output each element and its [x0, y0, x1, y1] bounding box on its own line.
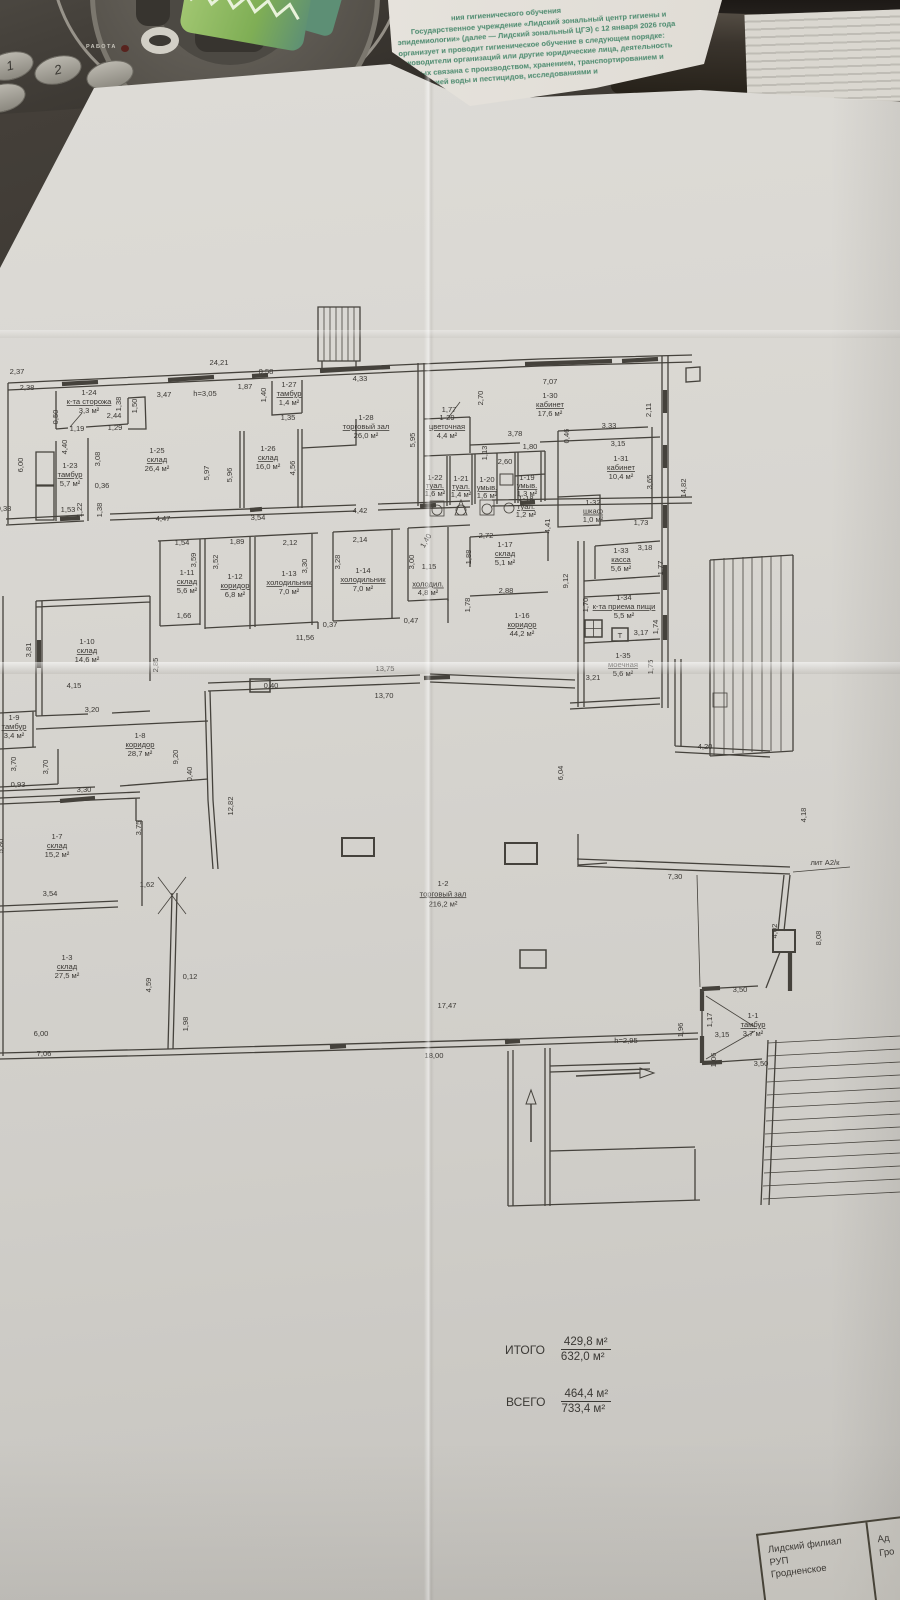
- dim-label: Т: [618, 631, 623, 640]
- dim-label: 1,73: [634, 518, 649, 527]
- dim-label: 1,88: [464, 550, 473, 565]
- room-label-1-11: 1-11склад5,6 м²: [177, 568, 198, 595]
- room-label-1-34: 1-34к-та приема пищи5,5 м²: [593, 593, 656, 620]
- dim-label: 2,11: [644, 403, 653, 417]
- dim-label: 3,00: [407, 555, 416, 570]
- dim-label: 5,80: [0, 839, 5, 854]
- floor-plan-drawing: 1-1тамбур3,7 м²1-2торговый зал216,2 м²1-…: [0, 0, 900, 1600]
- dim-label: 2,70: [476, 391, 485, 406]
- dim-label: 1,19: [70, 424, 85, 433]
- dim-label: 1,74: [651, 620, 660, 635]
- dim-label: 13,70: [374, 691, 393, 700]
- room-label-1-1: 1-1тамбур3,7 м²: [741, 1011, 766, 1038]
- dim-label: 2,38: [20, 383, 35, 392]
- dim-label: 1,54: [175, 538, 190, 547]
- dim-label: 3,70: [41, 760, 50, 775]
- dim-label: 3,28: [333, 555, 342, 570]
- dim-label: 1,38: [114, 397, 123, 412]
- dim-label: 3,50: [754, 1059, 769, 1068]
- dim-label: 1,80: [523, 442, 538, 451]
- dim-label: 14,82: [679, 478, 688, 497]
- dim-label: 4,40: [60, 440, 69, 455]
- dim-label: 3,54: [43, 889, 58, 898]
- dim-label: 3,30: [300, 559, 309, 574]
- dim-label: 4,15: [67, 681, 82, 690]
- dim-label: 3,30: [77, 785, 92, 794]
- dim-label: 7,07: [543, 377, 558, 386]
- dim-label: 3,08: [93, 452, 102, 467]
- dim-label: 0,47: [404, 616, 419, 625]
- dim-label: 3,18: [638, 543, 653, 552]
- dim-label: 1,66: [177, 611, 192, 620]
- dim-label: 4,42: [353, 506, 368, 515]
- dim-label: 2,60: [498, 457, 513, 466]
- room-label-1-31: 1-31кабинет10,4 м²: [607, 454, 635, 481]
- dim-label: 0,40: [185, 767, 194, 782]
- dim-label: 1,53: [61, 505, 76, 514]
- dim-label: 2,44: [107, 411, 122, 420]
- dim-label: 1,29: [108, 423, 123, 432]
- dim-label: 1,96: [676, 1023, 685, 1038]
- walls-entrance: [508, 951, 790, 1206]
- room-label-1-23: 1-23тамбур5,7 м²: [58, 461, 83, 488]
- room-label-1-21: 1-21туал.1,4 м²: [451, 474, 472, 499]
- dim-label: 9,20: [171, 750, 180, 765]
- dim-label: 3,52: [211, 555, 220, 570]
- dim-label: 4,56: [288, 461, 297, 476]
- room-label-1-16: 1-16коридор44,2 м²: [508, 611, 537, 638]
- dim-label: 1,22: [75, 503, 84, 518]
- dim-label: 3,50: [733, 985, 748, 994]
- dim-label: 4,33: [353, 374, 368, 383]
- itogo-area-main: 429,8 м²: [561, 1336, 611, 1350]
- dim-label: 1,77: [442, 405, 457, 414]
- dim-label: 0,12: [183, 972, 198, 981]
- room-label-1-33: 1-33касса5,6 м²: [611, 546, 632, 573]
- paper-fold-horizontal: [0, 662, 900, 674]
- dim-label: 4,41: [543, 519, 552, 534]
- dim-label: h=3,05: [193, 389, 216, 398]
- room-label-1-10: 1-10склад14,6 м²: [75, 637, 100, 664]
- dim-label: 1,77: [656, 561, 665, 576]
- dim-label: 1,50: [130, 399, 139, 414]
- room-label-1-3: 1-3склад27,5 м²: [55, 953, 80, 980]
- dim-label: 3,54: [251, 513, 266, 522]
- itogo-area-total: 632,0 м²: [561, 1350, 611, 1363]
- dim-label: 4,59: [144, 978, 153, 993]
- fixtures: [250, 474, 795, 968]
- dim-label: 1,89: [230, 537, 245, 546]
- dim-label: 17,47: [437, 1001, 456, 1010]
- dim-label: 4,20: [698, 742, 713, 751]
- title-block-organization: Лидский филиал РУП Гродненское: [758, 1523, 876, 1600]
- totals-vsego: ВСЕГО 464,4 м² 733,4 м²: [506, 1388, 611, 1415]
- itogo-label: ИТОГО: [505, 1343, 545, 1357]
- dim-label: 3,33: [602, 421, 617, 430]
- paper-wrinkle: [0, 330, 900, 338]
- dim-label: 2,12: [283, 538, 298, 547]
- room-label-1-27: 1-27тамбур1,4 м²: [277, 380, 302, 407]
- dim-label: 5,95: [408, 433, 417, 448]
- paper-fold-vertical: [424, 60, 434, 1600]
- dim-label: 3,20: [85, 705, 100, 714]
- dim-label: 12,82: [226, 796, 235, 815]
- dim-label: 1,06: [709, 1053, 718, 1068]
- dim-label: 1,62: [140, 880, 155, 889]
- dim-label: 6,00: [34, 1029, 49, 1038]
- dim-label: 3,15: [611, 439, 626, 448]
- dim-label: 1,40: [259, 388, 268, 403]
- dim-label: 3,81: [24, 643, 33, 658]
- dim-label: 0,40: [264, 681, 279, 690]
- dim-label: 0,36: [95, 481, 110, 490]
- room-label-1-19: 1-19умыв.1,3 м²: [517, 473, 538, 498]
- dim-label: 0,33: [0, 504, 11, 513]
- room-label-1-7: 1-7склад15,2 м²: [45, 832, 70, 859]
- dim-label: 0,46: [562, 429, 571, 444]
- dim-label: 4,47: [156, 514, 171, 523]
- dim-label: 1,70: [581, 598, 590, 613]
- room-label-1-9: 1-9тамбур3,4 м²: [2, 713, 27, 740]
- dim-label: 3,65: [645, 475, 654, 490]
- dim-label: 2,88: [499, 586, 514, 595]
- vsego-label: ВСЕГО: [506, 1395, 545, 1409]
- dim-label: 9,12: [561, 574, 570, 589]
- dim-label: 2,37: [10, 367, 25, 376]
- dim-label: 24,21: [209, 358, 228, 367]
- dim-label: 7,06: [37, 1049, 52, 1058]
- dim-label: 2,14: [353, 535, 368, 544]
- dim-label: 3,47: [157, 390, 172, 399]
- room-label-1-12: 1-12коридор6,8 м²: [221, 572, 250, 599]
- dim-label: 1,13: [480, 446, 489, 461]
- room-label-1-28: 1-28торговый зал26,0 м²: [343, 413, 390, 440]
- dim-label: h=2,95: [614, 1036, 637, 1045]
- dim-label: 6,04: [556, 766, 565, 781]
- room-label-1-30: 1-30кабинет17,6 м²: [536, 391, 564, 418]
- dim-label: 3,59: [189, 553, 198, 568]
- shadow-right: [830, 100, 900, 1600]
- room-label-1-8: 1-8коридор28,7 м²: [126, 731, 155, 758]
- vsego-values: 464,4 м² 733,4 м²: [561, 1388, 611, 1415]
- room-label-1-32: 1-32шкаф1,0 м²: [583, 498, 604, 524]
- vsego-area-total: 733,4 м²: [561, 1402, 611, 1415]
- dim-label: 2,72: [479, 531, 494, 540]
- dim-label: 0,93: [11, 780, 26, 789]
- room-label-1-14: 1-14холодильник7,0 м²: [340, 566, 386, 593]
- dim-label: 1,35: [281, 413, 296, 422]
- totals-itogo: ИТОГО 429,8 м² 632,0 м²: [505, 1336, 611, 1363]
- dim-label: 0,58: [259, 367, 274, 376]
- dim-label: 1,17: [705, 1013, 714, 1028]
- dim-label: 3,78: [508, 429, 523, 438]
- photo-scene: РАБОТА 1 2: [0, 0, 900, 1600]
- dim-label: 0,37: [323, 620, 338, 629]
- walls-top-rooms: [36, 363, 660, 527]
- room-label-1-17: 1-17склад5,1 м²: [495, 540, 516, 567]
- vsego-area-main: 464,4 м²: [561, 1388, 611, 1402]
- dim-label: 3,15: [715, 1030, 730, 1039]
- dim-label: 4,18: [799, 808, 808, 823]
- dim-label: 0,50: [51, 410, 60, 425]
- dim-label: 1,38: [95, 503, 104, 518]
- itogo-values: 429,8 м² 632,0 м²: [561, 1336, 611, 1363]
- dim-label: 5,96: [225, 468, 234, 483]
- room-label-1-24: 1-24к-та сторожа3,3 м²: [67, 388, 112, 415]
- dim-label: 3,21: [586, 673, 601, 682]
- dim-label: 7,30: [668, 872, 683, 881]
- dim-label: 3,17: [634, 628, 649, 637]
- room-label-1-20: 1-20умыв.1,6 м²: [477, 475, 498, 500]
- dim-label: 11,56: [296, 633, 314, 642]
- dim-label: 8,08: [814, 931, 823, 946]
- dim-label: 1,78: [463, 598, 472, 613]
- dim-label: 5,97: [202, 466, 211, 481]
- dim-label: 1,87: [238, 382, 253, 391]
- dim-label: 4,02: [770, 924, 779, 939]
- room-label-1-25: 1-25склад26,4 м²: [145, 446, 170, 473]
- dim-label: 3,70: [9, 757, 18, 772]
- dim-label: 3,75: [134, 821, 143, 836]
- dim-label: 1,98: [181, 1017, 190, 1032]
- room-label-1-26: 1-26склад16,0 м²: [256, 444, 281, 471]
- dim-label: 6,00: [16, 458, 25, 473]
